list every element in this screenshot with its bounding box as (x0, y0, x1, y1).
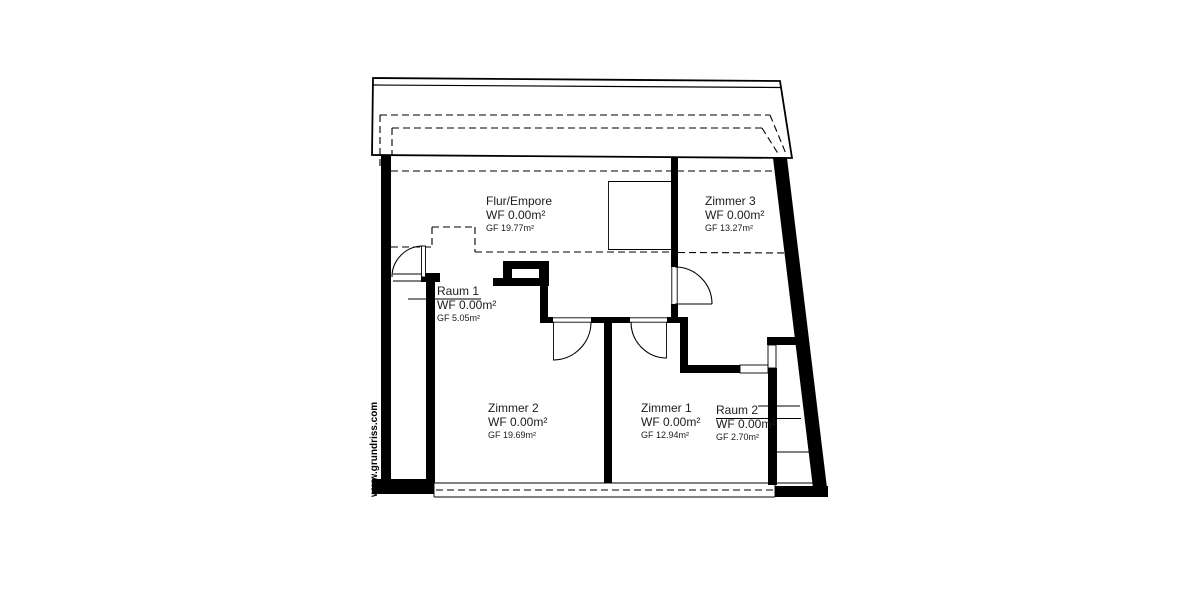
room-wf: WF 0.00m² (641, 416, 700, 430)
south-flur-wall-3 (667, 317, 688, 323)
room-name: Raum 2 (716, 404, 775, 418)
label-zimmer1: Zimmer 1 WF 0.00m² GF 12.94m² (641, 402, 700, 440)
flur-zimmer3-wall-lower (671, 304, 678, 317)
room-gf: GF 5.05m² (437, 313, 496, 323)
room-name: Flur/Empore (486, 195, 552, 209)
nook-railing (740, 365, 768, 373)
floorplan-drawing (0, 0, 1200, 600)
label-flur-empore: Flur/Empore WF 0.00m² GF 19.77m² (486, 195, 552, 233)
door-flur-leaf (422, 246, 426, 277)
room-gf: GF 12.94m² (641, 430, 700, 440)
room-name: Raum 1 (437, 285, 496, 299)
south-flur-wall-2 (591, 317, 630, 323)
chimney-stub (540, 286, 548, 317)
bottom-left-wall-block (372, 479, 434, 494)
room-gf: GF 2.70m² (716, 432, 775, 442)
right-slanted-wall (773, 158, 827, 488)
door-zimmer3-arc (675, 267, 712, 304)
stair-opening (609, 181, 672, 250)
room-wf: WF 0.00m² (705, 209, 764, 223)
zimmer1-corner-wall (680, 323, 688, 373)
door-flur (392, 246, 426, 277)
raum2-top-wall (767, 337, 799, 345)
chimney-right (539, 269, 549, 278)
label-raum1: Raum 1 WF 0.00m² GF 5.05m² (437, 285, 496, 323)
chimney-top (503, 261, 549, 269)
room-name: Zimmer 2 (488, 402, 547, 416)
room-gf: GF 13.27m² (705, 223, 764, 233)
door-flur-arc (392, 246, 423, 277)
door-zimmer2 (553, 322, 591, 360)
room-wf: WF 0.00m² (488, 416, 547, 430)
door-zimmer1-arc (631, 322, 667, 358)
room-wf: WF 0.00m² (486, 209, 552, 223)
label-zimmer3: Zimmer 3 WF 0.00m² GF 13.27m² (705, 195, 764, 233)
room-gf: GF 19.77m² (486, 223, 552, 233)
door-zimmer2-arc (553, 322, 591, 360)
zimmer1-nook-wall (688, 365, 740, 373)
door-zimmer1 (631, 322, 667, 358)
label-raum2: Raum 2 WF 0.00m² GF 2.70m² (716, 404, 775, 442)
room-name: Zimmer 1 (641, 402, 700, 416)
floorplan-canvas: Flur/Empore WF 0.00m² GF 19.77m² Zimmer … (0, 0, 1200, 600)
left-wall (381, 155, 391, 492)
raum2-opening (768, 345, 776, 368)
door-zimmer3 (675, 267, 712, 304)
south-flur-wall-1 (540, 317, 553, 323)
room-wf: WF 0.00m² (716, 418, 775, 432)
chimney-bottom (493, 278, 549, 286)
bottom-right-wall-block (775, 486, 828, 497)
raum1-wall-vertical (426, 273, 435, 483)
room-gf: GF 19.69m² (488, 430, 547, 440)
flur-zimmer3-wall-upper (671, 157, 678, 267)
room-wf: WF 0.00m² (437, 299, 496, 313)
label-zimmer2: Zimmer 2 WF 0.00m² GF 19.69m² (488, 402, 547, 440)
chimney-left (503, 269, 512, 278)
zimmer1-zimmer2-divider (604, 323, 612, 483)
roof-band (372, 78, 792, 170)
room-name: Zimmer 3 (705, 195, 764, 209)
watermark-text: www.grundriss.com (369, 402, 380, 497)
